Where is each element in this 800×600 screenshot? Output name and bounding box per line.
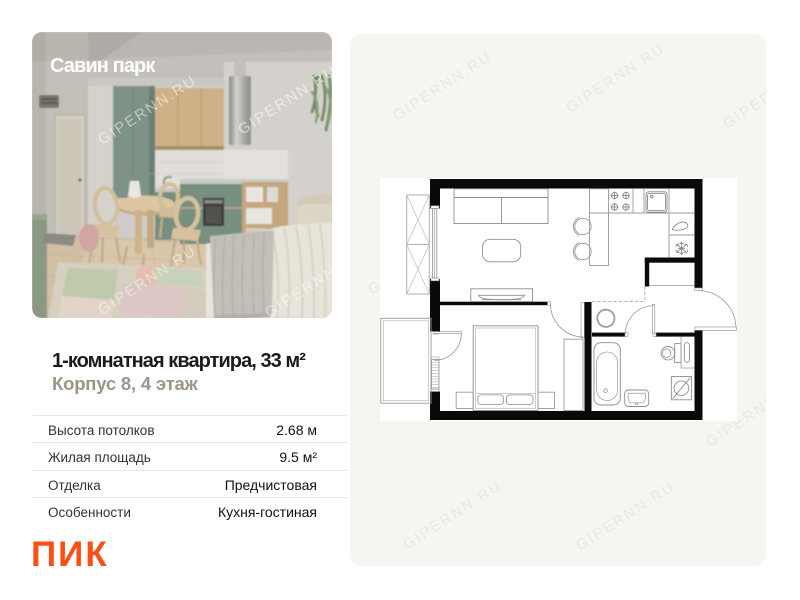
- svg-text:GIPERNN.RU: GIPERNN.RU: [563, 40, 668, 116]
- svg-text:GIPERNN.RU: GIPERNN.RU: [390, 48, 495, 124]
- svg-text:GIPERNN.RU: GIPERNN.RU: [573, 478, 678, 554]
- svg-text:GIPERNN.RU: GIPERNN.RU: [720, 56, 766, 132]
- svg-text:GIPERNN.RU: GIPERNN.RU: [400, 477, 505, 553]
